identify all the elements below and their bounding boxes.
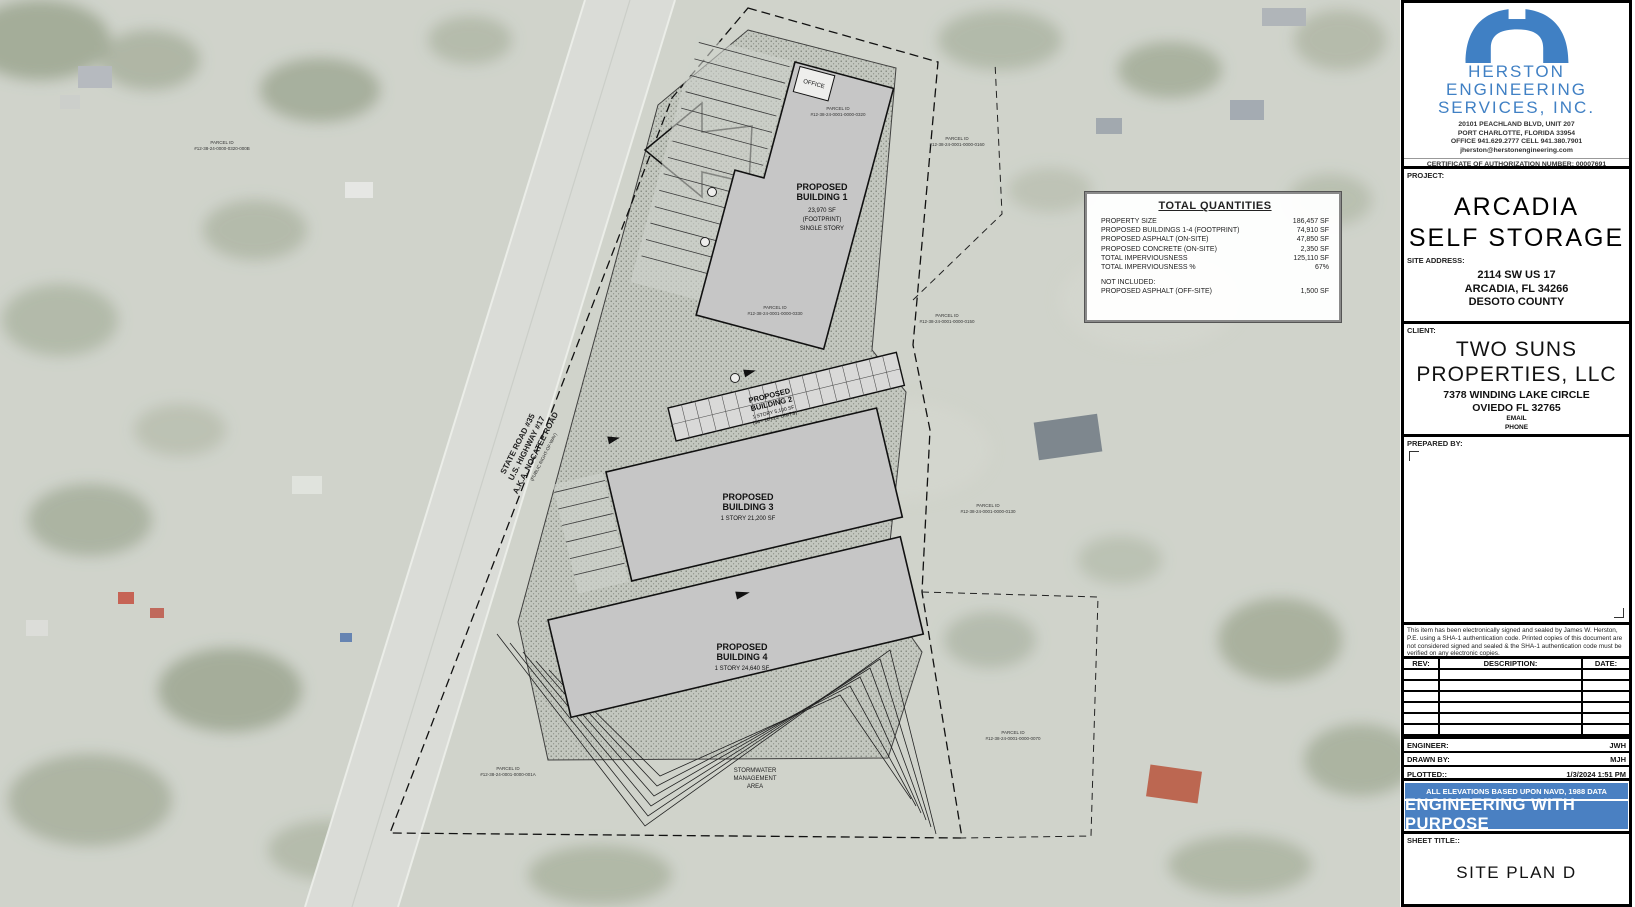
date-header: DATE: [1583,659,1629,670]
svg-text:SINGLE STORY: SINGLE STORY [800,226,844,232]
description-header: DESCRIPTION: [1440,659,1583,670]
rev-cell [1583,681,1629,692]
sheet-title-label: SHEET TITLE:: [1404,834,1629,845]
svg-text:1 STORY 24,640 SF: 1 STORY 24,640 SF [715,666,770,672]
svg-text:#12-38-24-0001-0000-0130: #12-38-24-0001-0000-0130 [960,509,1016,514]
rev-cell [1404,703,1440,714]
svg-text:#12-38-24-0001-0000-0320: #12-38-24-0001-0000-0320 [810,112,866,117]
not-included-label: NOT INCLUDED: [1101,278,1329,287]
quantity-row: PROPERTY SIZE186,457 SF [1101,217,1329,226]
sheet-title-block: SHEET TITLE:: SITE PLAN D [1404,834,1629,906]
project-name: ARCADIA SELF STORAGE [1404,192,1629,254]
project-block: PROJECT: ARCADIA SELF STORAGE SITE ADDRE… [1404,169,1629,324]
site-plan-drawing: OFFICE [0,0,1400,907]
rev-cell [1404,714,1440,725]
rev-cell [1583,714,1629,725]
svg-text:23,970 SF: 23,970 SF [808,208,836,214]
building-4-label: PROPOSED BUILDING 4 1 STORY 24,640 SF [715,642,770,672]
svg-text:#12-38-24-0001-0000-0150: #12-38-24-0001-0000-0150 [919,319,975,324]
svg-text:MANAGEMENT: MANAGEMENT [733,776,776,782]
engineer-row: ENGINEER:JWH [1404,739,1629,753]
quantities-title: TOTAL QUANTITIES [1101,200,1329,212]
motto-bar: ENGINEERING WITH PURPOSE [1405,801,1628,829]
svg-text:PROPOSED: PROPOSED [796,182,848,192]
drawn-by-row: DRAWN BY:MJH [1404,753,1629,767]
rev-cell [1583,703,1629,714]
rev-cell [1440,714,1583,725]
certificate-number: CERTIFICATE OF AUTHORIZATION NUMBER: 000… [1404,158,1629,168]
svg-text:PARCEL ID: PARCEL ID [935,313,959,318]
seal-corner-mark [1409,451,1419,461]
svg-text:PARCEL ID: PARCEL ID [496,766,520,771]
svg-text:PARCEL ID: PARCEL ID [976,503,1000,508]
rev-cell [1440,725,1583,736]
rev-cell [1583,725,1629,736]
electronic-signature-note: This item has been electronically signed… [1404,625,1629,659]
site-plan-sheet: OFFICE [0,0,1635,907]
quantity-row: PROPOSED CONCRETE (ON-SITE)2,350 SF [1101,245,1329,254]
project-label: PROJECT: [1404,169,1629,180]
company-name: HERSTON ENGINEERING SERVICES, INC. [1404,63,1629,117]
title-block: HERSTON ENGINEERING SERVICES, INC. 20101… [1401,0,1632,907]
client-label: CLIENT: [1404,324,1629,335]
rev-cell [1583,670,1629,681]
site-address: 2114 SW US 17 ARCADIA, FL 34266 DESOTO C… [1404,269,1629,310]
svg-text:BUILDING 4: BUILDING 4 [716,652,767,662]
seal-corner-mark [1614,608,1624,618]
quantity-row: PROPOSED ASPHALT (ON-SITE)47,850 SF [1101,235,1329,244]
prepared-by-label: PREPARED BY: [1404,437,1629,448]
svg-text:#12-38-24-0001-0000-0160: #12-38-24-0001-0000-0160 [929,142,985,147]
svg-text:#12-38-24-0001-0000-001A: #12-38-24-0001-0000-001A [480,772,536,777]
rev-cell [1404,692,1440,703]
rev-cell [1440,681,1583,692]
banner-bars: ALL ELEVATIONS BASED UPON NAVD, 1988 DAT… [1404,781,1629,834]
rev-cell [1440,703,1583,714]
client-contact-placeholders: EMAIL PHONE [1404,415,1629,432]
svg-text:PARCEL ID: PARCEL ID [945,136,969,141]
svg-text:BUILDING 3: BUILDING 3 [722,502,773,512]
building-3-label: PROPOSED BUILDING 3 1 STORY 21,200 SF [721,492,776,522]
sheet-title: SITE PLAN D [1404,863,1629,883]
rev-cell [1404,681,1440,692]
quantity-row: PROPOSED BUILDINGS 1-4 (FOOTPRINT)74,910… [1101,226,1329,235]
quantity-row: TOTAL IMPERVIOUSNESS125,110 SF [1101,254,1329,263]
total-quantities-table: TOTAL QUANTITIES PROPERTY SIZE186,457 SF… [1085,192,1341,322]
company-block: HERSTON ENGINEERING SERVICES, INC. 20101… [1404,3,1629,169]
svg-text:#12-38-24-0001-0000-0330: #12-38-24-0001-0000-0330 [747,311,803,316]
rev-header: REV: [1404,659,1440,670]
svg-text:BUILDING 1: BUILDING 1 [796,192,847,202]
quantity-row: PROPOSED ASPHALT (OFF-SITE)1,500 SF [1101,287,1329,296]
site-address-label: SITE ADDRESS: [1404,254,1629,265]
svg-text:PROPOSED: PROPOSED [722,492,774,502]
quantity-row: TOTAL IMPERVIOUSNESS %67% [1101,263,1329,272]
rev-cell [1440,692,1583,703]
svg-text:PROPOSED: PROPOSED [716,642,768,652]
rev-cell [1440,670,1583,681]
svg-text:PARCEL ID: PARCEL ID [763,305,787,310]
rev-cell [1583,692,1629,703]
revision-table: REV: DESCRIPTION: DATE: [1404,659,1629,739]
svg-text:STORMWATER: STORMWATER [734,768,777,774]
herston-logo-icon [1457,5,1577,63]
client-block: CLIENT: TWO SUNS PROPERTIES, LLC 7378 WI… [1404,324,1629,437]
rev-cell [1404,725,1440,736]
rev-cell [1404,670,1440,681]
company-email: jherston@herstonengineering.com [1404,147,1629,156]
svg-text:(FOOTPRINT): (FOOTPRINT) [803,217,842,223]
plotted-row: PLOTTED::1/3/2024 1:51 PM [1404,767,1629,781]
drawing-info-rows: ENGINEER:JWH DRAWN BY:MJH PLOTTED::1/3/2… [1404,739,1629,781]
svg-text:AREA: AREA [747,784,763,790]
client-name: TWO SUNS PROPERTIES, LLC [1404,337,1629,387]
prepared-by-block: PREPARED BY: [1404,437,1629,625]
company-address: 20101 PEACHLAND BLVD, UNIT 207 PORT CHAR… [1404,121,1629,155]
svg-text:PARCEL ID: PARCEL ID [210,140,234,145]
client-address: 7378 WINDING LAKE CIRCLE OVIEDO FL 32765 [1404,389,1629,415]
svg-text:1 STORY 21,200 SF: 1 STORY 21,200 SF [721,516,776,522]
svg-text:#12-38-24-0001-0000-0070: #12-38-24-0001-0000-0070 [985,736,1041,741]
svg-text:PARCEL ID: PARCEL ID [1001,730,1025,735]
svg-text:#12-38-24-0000-0320-000B: #12-38-24-0000-0320-000B [194,146,250,151]
svg-text:PARCEL ID: PARCEL ID [826,106,850,111]
